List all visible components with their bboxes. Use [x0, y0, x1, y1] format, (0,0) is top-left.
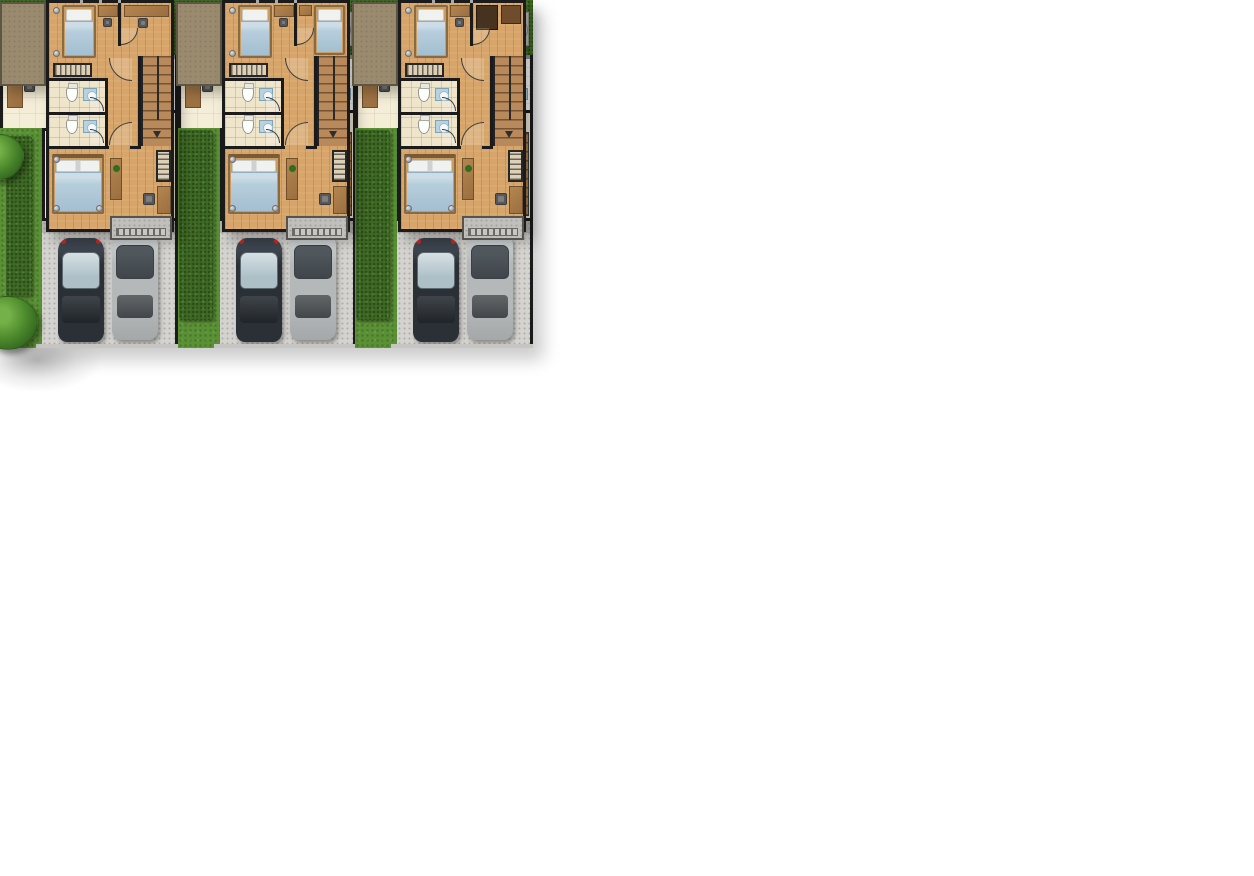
ceiling-light [405, 7, 412, 14]
wall-vents [416, 0, 486, 3]
roof-deck [0, 2, 46, 86]
desk-chair [455, 18, 464, 27]
desk-chair [143, 193, 155, 205]
wall-vents [240, 0, 310, 3]
ceiling-light [229, 156, 236, 163]
master-bedroom-wall [130, 146, 141, 149]
ceiling-light [405, 156, 412, 163]
upper-floor-unit-3 [352, 0, 526, 244]
bathroom-wall [457, 81, 460, 148]
upper-floor-unit-1 [0, 0, 174, 244]
outer-wall [523, 0, 526, 232]
unit-body [222, 0, 350, 232]
balcony [110, 216, 172, 240]
single-bed [414, 5, 448, 58]
roof-deck [176, 2, 222, 86]
cabinet [501, 5, 521, 24]
single-bed [314, 5, 345, 55]
ceiling-light [272, 205, 279, 212]
staircase [317, 56, 347, 146]
closet [156, 150, 171, 182]
desk [333, 186, 347, 214]
outer-wall [398, 0, 401, 232]
bathroom-wall [281, 81, 284, 148]
silver-car [467, 232, 513, 340]
dark-car [58, 238, 104, 342]
wardrobe [405, 63, 444, 77]
master-bedroom-wall [482, 146, 493, 149]
desk [157, 186, 171, 214]
bedroom-desk [274, 5, 294, 17]
closet [332, 150, 347, 182]
ceiling-light [405, 205, 412, 212]
bench-with-plant [286, 158, 298, 200]
ceiling-light [229, 7, 236, 14]
balcony [462, 216, 524, 240]
wardrobe [53, 63, 92, 77]
ceiling-light [229, 205, 236, 212]
staircase [141, 56, 171, 146]
outer-wall [347, 0, 350, 232]
bathroom-wall [105, 81, 108, 148]
desk [509, 186, 523, 214]
wall-vents [64, 0, 134, 3]
master-bedroom-wall [225, 146, 285, 149]
desk-chair [138, 18, 148, 28]
master-bedroom-wall [49, 146, 109, 149]
ceiling-light [448, 205, 455, 212]
wardrobe [229, 63, 268, 77]
unit-body [398, 0, 526, 232]
roof-deck [352, 2, 398, 86]
upper-floor-plan [0, 348, 526, 592]
single-bed [238, 5, 272, 58]
upper-floor-unit-2 [176, 0, 350, 244]
outer-wall [171, 0, 174, 232]
wardrobe [476, 5, 498, 30]
desk-chair [103, 18, 112, 27]
bedroom-desk [450, 5, 470, 17]
ceiling-light [53, 50, 60, 57]
silver-car [290, 232, 336, 340]
study-desk [124, 5, 169, 17]
bench-with-plant [462, 158, 474, 200]
unit-body [46, 0, 174, 232]
study-desk [299, 5, 312, 16]
single-bed [62, 5, 96, 58]
balcony [286, 216, 348, 240]
bench-with-plant [110, 158, 122, 200]
closet [508, 150, 523, 182]
ceiling-light [229, 50, 236, 57]
dark-car [236, 238, 282, 342]
master-bedroom-wall [401, 146, 461, 149]
staircase [493, 56, 523, 146]
floor-plans-scene [0, 0, 1254, 876]
ceiling-light [405, 50, 412, 57]
ceiling-light [53, 7, 60, 14]
side-wall [530, 55, 533, 348]
desk-chair [319, 193, 331, 205]
driveway-curb [391, 344, 533, 348]
driveway-curb [214, 344, 356, 348]
desk-chair [495, 193, 507, 205]
bedroom-desk [98, 5, 118, 17]
ceiling-light [53, 156, 60, 163]
ceiling-light [53, 205, 60, 212]
outer-wall [222, 0, 225, 232]
silver-car [112, 232, 158, 340]
dark-car [413, 238, 459, 342]
desk-chair [279, 18, 288, 27]
outer-wall [46, 0, 49, 232]
master-bedroom-wall [306, 146, 317, 149]
driveway-curb [36, 344, 178, 348]
ceiling-light [96, 205, 103, 212]
